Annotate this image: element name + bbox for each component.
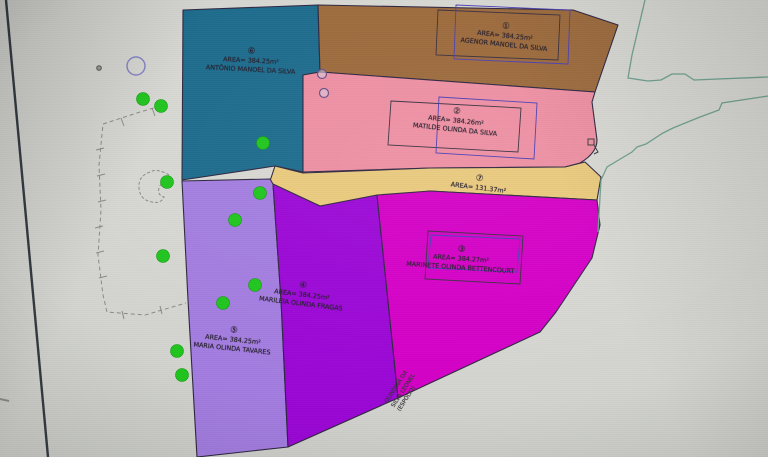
left-edge-small-dash xyxy=(0,399,9,401)
target-point-symbol xyxy=(97,66,102,71)
parcel-3-shape xyxy=(377,191,600,398)
photographed-monitor-screen: ① AREA= 384.25m² AGENOR MANOEL DA SILVA … xyxy=(0,0,768,457)
dashed-boundary-line xyxy=(98,104,186,315)
road-boundary-lines xyxy=(598,0,768,232)
road-line-lower xyxy=(598,96,768,232)
cadastral-plan-drawing xyxy=(0,0,768,457)
dashed-survey-boundary xyxy=(95,104,186,319)
parcel-6-number: ⑥ xyxy=(247,46,255,57)
road-line-upper xyxy=(628,0,768,81)
survey-tick-marks xyxy=(95,108,162,319)
parcel-4-shape xyxy=(273,184,398,447)
parcel-6-shape xyxy=(182,5,320,180)
small-circle-marker-upper xyxy=(318,70,327,79)
survey-dot xyxy=(229,214,242,227)
open-circle-symbol xyxy=(127,57,145,75)
survey-dot xyxy=(254,187,267,200)
survey-dot xyxy=(137,93,150,106)
survey-dot xyxy=(257,137,270,150)
survey-dot xyxy=(176,369,189,382)
survey-dot xyxy=(161,176,174,189)
survey-dot xyxy=(217,297,230,310)
small-circle-marker-lower xyxy=(320,89,329,98)
screen-edge-line xyxy=(6,0,48,457)
survey-dot xyxy=(157,250,170,263)
survey-dot xyxy=(171,345,184,358)
parcel-6-label: ⑥ AREA= 384.25m² ANTÔNIO MANOEL DA SILVA xyxy=(206,44,297,75)
survey-dot xyxy=(155,100,168,113)
